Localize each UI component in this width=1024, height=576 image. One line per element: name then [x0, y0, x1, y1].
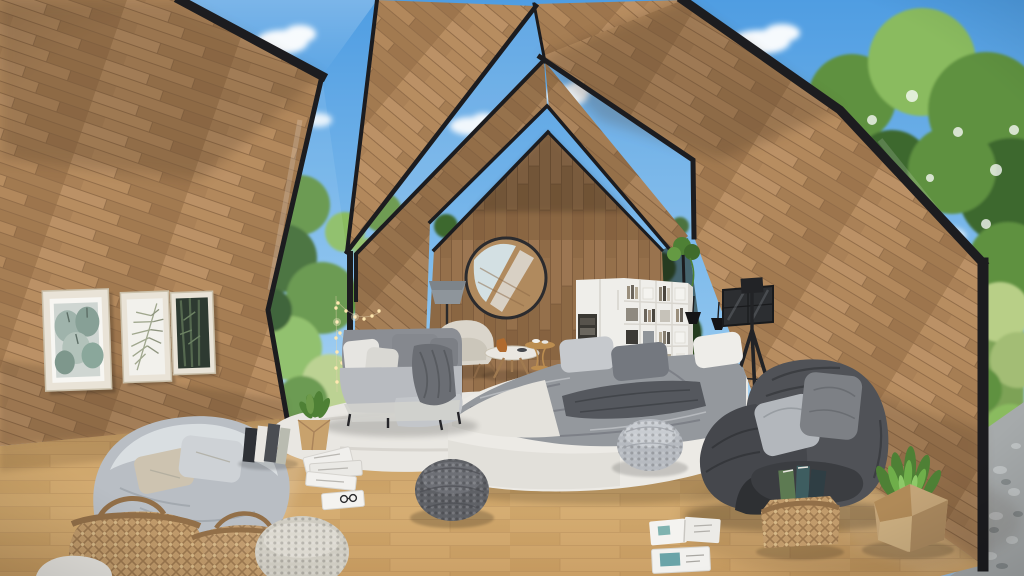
vignette: [0, 0, 1024, 576]
scene-canvas: [0, 0, 1024, 576]
attic-room-render: [0, 0, 1024, 576]
